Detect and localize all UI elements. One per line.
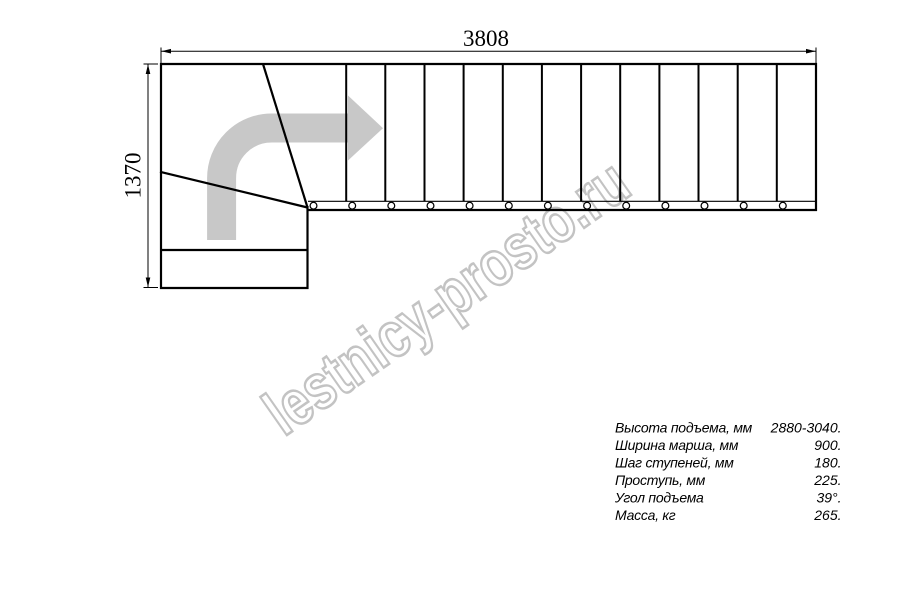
svg-text:1370: 1370	[121, 153, 146, 199]
svg-text:Проступь, мм: Проступь, мм	[615, 472, 706, 488]
svg-text:39°.: 39°.	[816, 490, 841, 506]
svg-text:Угол подъема: Угол подъема	[614, 490, 704, 506]
svg-text:2880-3040.: 2880-3040.	[770, 420, 842, 436]
svg-text:225.: 225.	[813, 472, 841, 488]
svg-text:Масса, кг: Масса, кг	[615, 507, 676, 523]
svg-text:265.: 265.	[813, 507, 841, 523]
svg-text:180.: 180.	[814, 455, 841, 471]
svg-text:Высота подъема, мм: Высота подъема, мм	[615, 420, 753, 436]
svg-text:Шаг ступеней, мм: Шаг ступеней, мм	[615, 455, 734, 471]
svg-text:lestnicy-prosto.ru: lestnicy-prosto.ru	[252, 146, 643, 449]
svg-text:Ширина марша, мм: Ширина марша, мм	[615, 437, 739, 453]
svg-text:3808: 3808	[463, 26, 509, 51]
svg-text:900.: 900.	[814, 437, 841, 453]
